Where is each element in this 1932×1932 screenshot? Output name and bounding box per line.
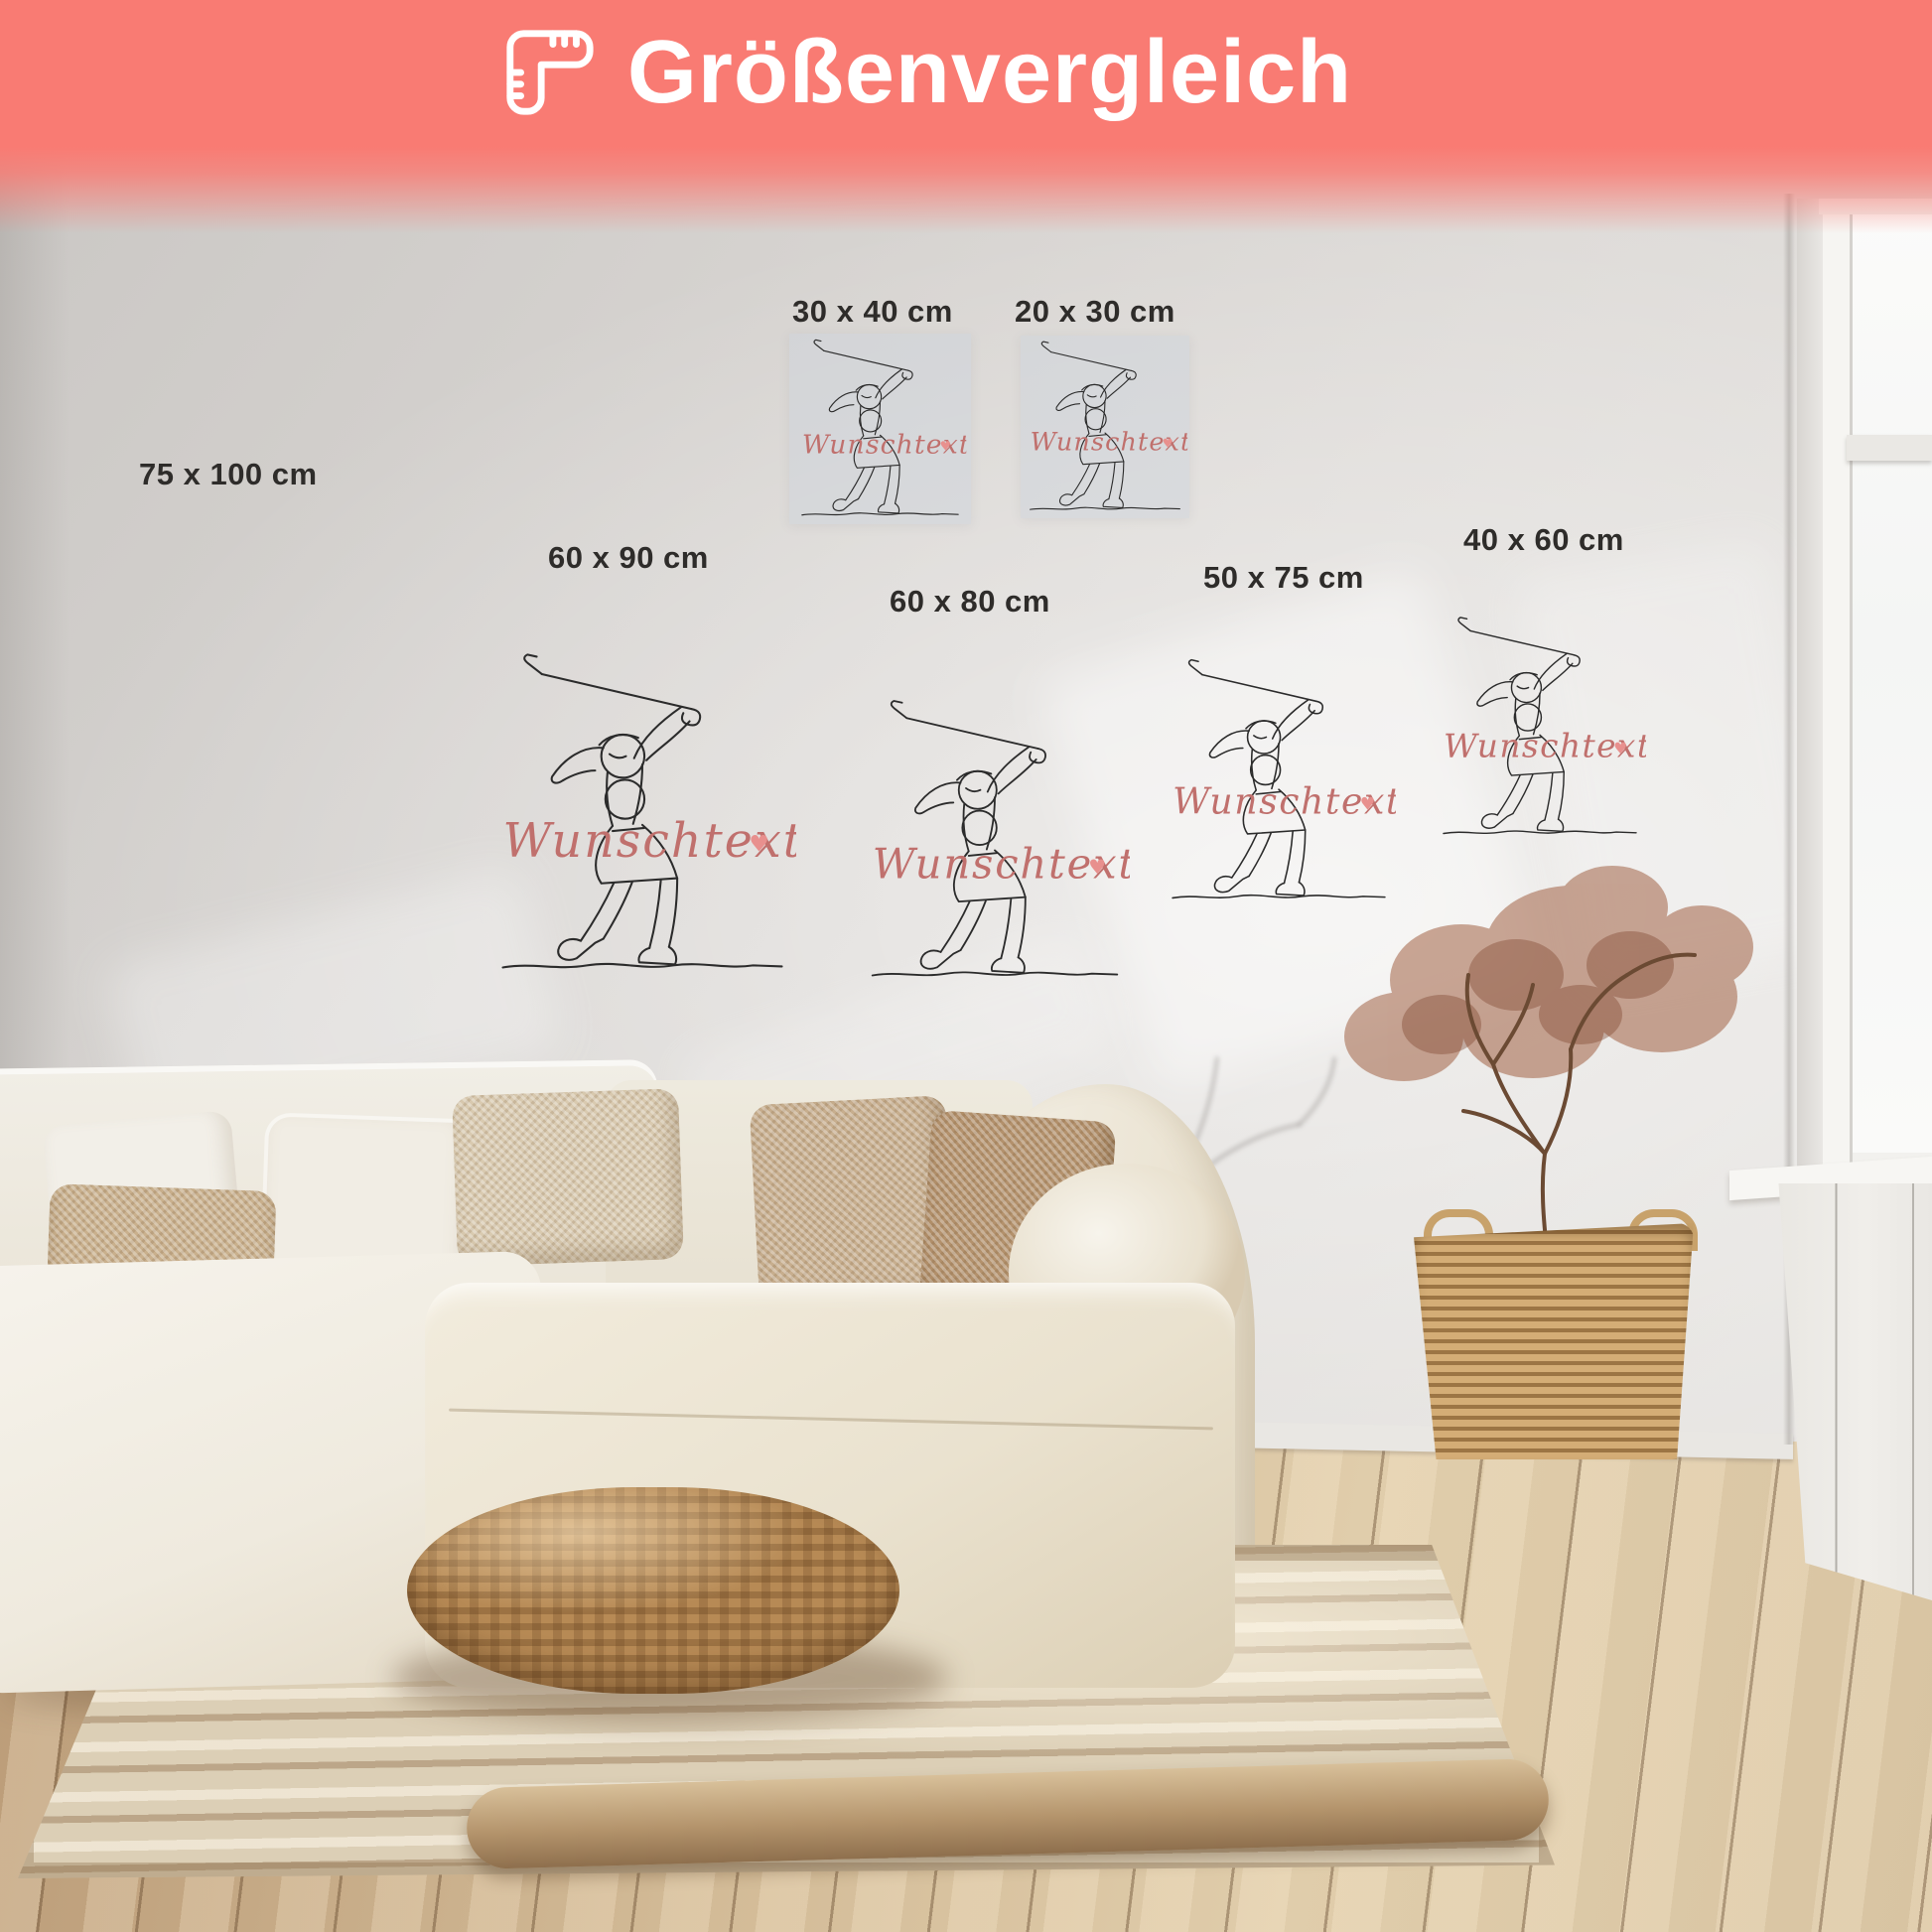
dried-plant: [1312, 826, 1789, 1263]
window-pane: [1853, 212, 1932, 1153]
size-label-60x80: 60 x 80 cm: [890, 584, 1050, 620]
size-comparison-product-image: 75 x 100 cm 30 x 40 cm 20 x 30 cm 60 x 9…: [0, 0, 1932, 1932]
window-frame: [1823, 199, 1853, 1167]
golfer-artwork: [860, 691, 1130, 990]
window-jamb: [1797, 199, 1823, 1167]
rattan-basket: [1414, 1223, 1694, 1459]
size-label-60x90: 60 x 90 cm: [548, 540, 709, 576]
header-banner: Größenvergleich: [0, 0, 1932, 233]
poster-60x80: [860, 691, 1130, 990]
size-label-50x75: 50 x 75 cm: [1203, 560, 1364, 596]
woven-pouf: [407, 1487, 899, 1694]
size-label-75x100: 75 x 100 cm: [139, 457, 318, 492]
banner-title: Größenvergleich: [627, 28, 1352, 117]
golfer-artwork: [1021, 336, 1189, 518]
golfer-artwork: [789, 334, 971, 524]
folding-ruler-icon: [500, 24, 598, 121]
banner-content: Größenvergleich: [0, 24, 1892, 121]
size-label-30x40: 30 x 40 cm: [792, 294, 953, 330]
window-mullion: [1847, 435, 1932, 461]
size-label-20x30: 20 x 30 cm: [1015, 294, 1175, 330]
poster-40x60: [1434, 610, 1646, 845]
golfer-artwork: [488, 643, 796, 984]
poster-30x40: [789, 334, 971, 524]
poster-60x90: [488, 643, 796, 984]
window: [1797, 199, 1932, 1167]
golfer-artwork: [1434, 610, 1646, 845]
poster-20x30: [1021, 336, 1189, 518]
pillow-oatmeal: [452, 1088, 684, 1267]
size-label-40x60: 40 x 60 cm: [1463, 522, 1624, 558]
